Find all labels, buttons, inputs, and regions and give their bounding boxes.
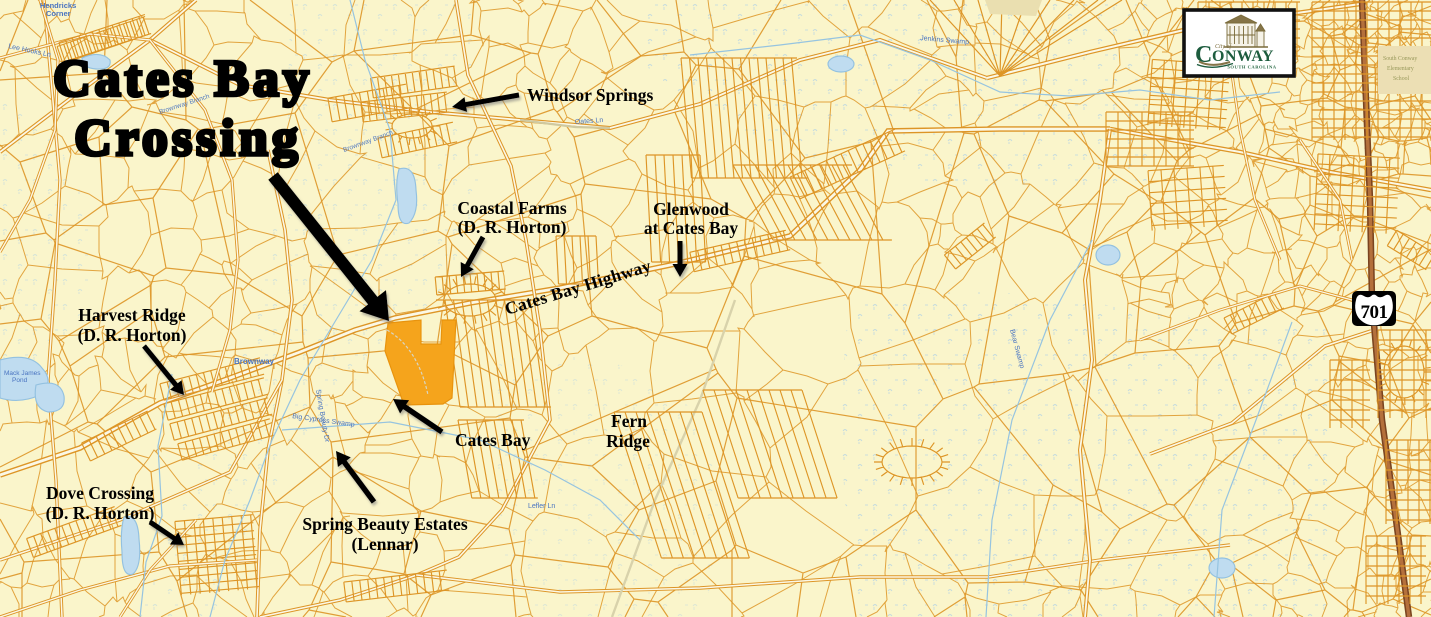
svg-text:ONWAY: ONWAY bbox=[1212, 48, 1274, 65]
svg-text:School: School bbox=[1393, 76, 1409, 82]
svg-text:(D. R. Horton): (D. R. Horton) bbox=[458, 217, 567, 237]
svg-text:701: 701 bbox=[1361, 302, 1388, 323]
svg-text:at Cates Bay: at Cates Bay bbox=[644, 218, 739, 238]
svg-text:Lefler Ln: Lefler Ln bbox=[528, 503, 555, 510]
svg-text:Pond: Pond bbox=[12, 377, 28, 384]
svg-text:Cates Bay: Cates Bay bbox=[53, 51, 313, 108]
svg-text:South Conway: South Conway bbox=[1383, 56, 1417, 62]
svg-text:Coastal Farms: Coastal Farms bbox=[457, 198, 567, 218]
svg-text:Dove Crossing: Dove Crossing bbox=[46, 483, 154, 503]
svg-text:(D. R. Horton): (D. R. Horton) bbox=[78, 325, 187, 345]
svg-text:Cates Bay: Cates Bay bbox=[455, 430, 531, 450]
svg-text:Mack James: Mack James bbox=[4, 370, 41, 377]
svg-text:SOUTH CAROLINA: SOUTH CAROLINA bbox=[1227, 65, 1276, 70]
svg-text:Elementary: Elementary bbox=[1387, 66, 1414, 72]
svg-text:Crossing: Crossing bbox=[74, 110, 302, 167]
svg-text:(Lennar): (Lennar) bbox=[351, 534, 418, 554]
svg-text:Windsor Springs: Windsor Springs bbox=[527, 85, 653, 105]
svg-text:Harvest Ridge: Harvest Ridge bbox=[78, 305, 186, 325]
svg-text:(D. R. Horton): (D. R. Horton) bbox=[46, 503, 155, 523]
svg-text:Glenwood: Glenwood bbox=[653, 199, 729, 219]
svg-text:Spring Beauty Estates: Spring Beauty Estates bbox=[302, 514, 467, 534]
svg-text:Fern: Fern bbox=[611, 411, 647, 431]
svg-text:Ridge: Ridge bbox=[606, 431, 650, 451]
svg-text:Corner: Corner bbox=[46, 9, 71, 18]
svg-text:Brownway: Brownway bbox=[234, 357, 275, 366]
